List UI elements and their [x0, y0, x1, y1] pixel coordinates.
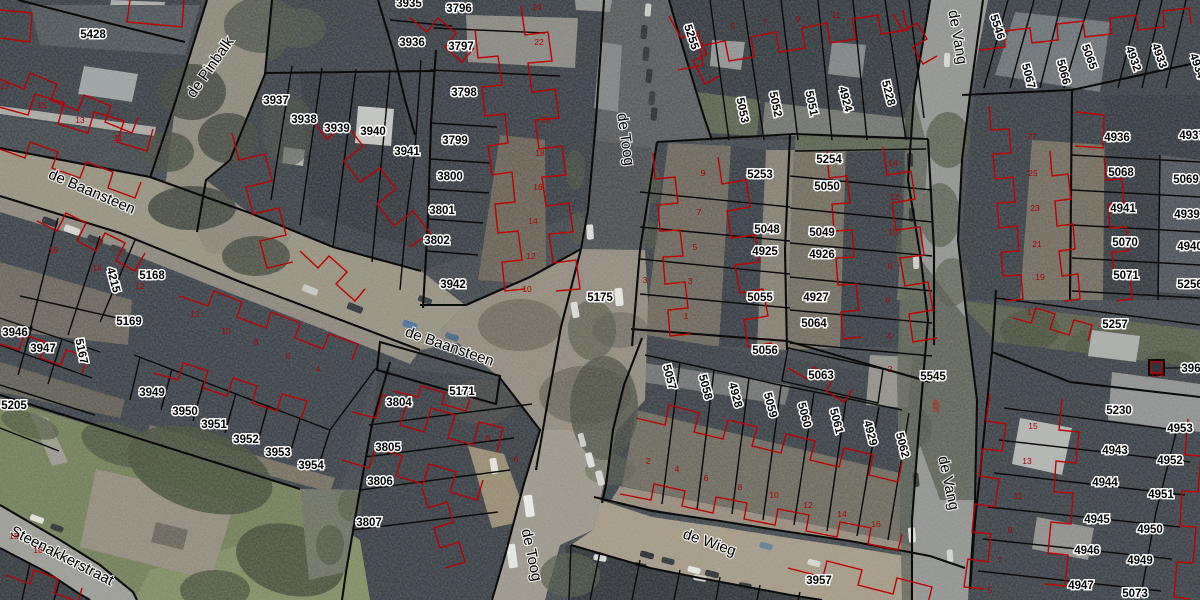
svg-text:5256: 5256 — [1177, 279, 1200, 291]
svg-text:5175: 5175 — [587, 292, 613, 304]
svg-text:4950: 4950 — [1137, 524, 1163, 536]
svg-text:3957: 3957 — [806, 575, 832, 587]
svg-text:4951: 4951 — [1148, 489, 1174, 501]
svg-text:5257: 5257 — [1102, 319, 1128, 331]
svg-text:8: 8 — [486, 433, 491, 443]
svg-text:16: 16 — [33, 545, 43, 555]
svg-text:12: 12 — [526, 251, 536, 261]
svg-text:5063: 5063 — [808, 370, 834, 382]
svg-text:22: 22 — [534, 37, 544, 47]
svg-text:4952: 4952 — [1157, 455, 1183, 467]
svg-text:4: 4 — [316, 364, 321, 374]
svg-text:4946: 4946 — [1074, 545, 1100, 557]
svg-text:3806: 3806 — [367, 476, 393, 488]
svg-text:3: 3 — [696, 29, 701, 39]
svg-text:5064: 5064 — [801, 318, 827, 330]
svg-text:3947: 3947 — [30, 343, 56, 355]
svg-text:3796: 3796 — [446, 3, 472, 15]
svg-text:396: 396 — [1181, 363, 1200, 375]
svg-text:3952: 3952 — [233, 434, 259, 446]
svg-text:3: 3 — [643, 275, 648, 285]
svg-text:3951: 3951 — [201, 419, 227, 431]
svg-text:3935: 3935 — [396, 0, 422, 10]
svg-text:3799: 3799 — [442, 135, 468, 147]
svg-text:9: 9 — [796, 14, 801, 24]
svg-text:5254: 5254 — [816, 154, 842, 166]
svg-text:21: 21 — [1032, 239, 1042, 249]
svg-text:9: 9 — [1008, 525, 1013, 535]
svg-text:5: 5 — [693, 242, 698, 252]
svg-text:6: 6 — [514, 454, 519, 464]
svg-text:4949: 4949 — [1127, 555, 1153, 567]
svg-text:5428: 5428 — [80, 29, 106, 41]
svg-text:5230: 5230 — [1106, 405, 1132, 417]
svg-text:3941: 3941 — [394, 146, 420, 158]
svg-text:5169: 5169 — [116, 316, 142, 328]
svg-text:5070: 5070 — [1112, 237, 1138, 249]
svg-text:6: 6 — [286, 351, 291, 361]
svg-text:8: 8 — [888, 261, 893, 271]
svg-text:12: 12 — [190, 309, 200, 319]
svg-text:5071: 5071 — [1113, 270, 1139, 282]
svg-text:5050: 5050 — [814, 181, 840, 193]
svg-text:5: 5 — [988, 585, 993, 595]
svg-text:154: 154 — [1150, 369, 1164, 379]
svg-text:4953: 4953 — [1167, 423, 1193, 435]
svg-text:5055: 5055 — [747, 292, 773, 304]
svg-text:27: 27 — [1027, 131, 1037, 141]
svg-text:3936: 3936 — [399, 37, 425, 49]
svg-text:3954: 3954 — [298, 460, 324, 472]
svg-text:8: 8 — [254, 337, 259, 347]
svg-text:5205: 5205 — [1, 400, 27, 412]
svg-text:3797: 3797 — [448, 41, 474, 53]
svg-text:12: 12 — [135, 281, 145, 291]
svg-text:5253: 5253 — [747, 169, 773, 181]
svg-text:3801: 3801 — [429, 205, 455, 217]
svg-text:10: 10 — [888, 227, 898, 237]
svg-text:3940: 3940 — [360, 126, 386, 138]
svg-text:10: 10 — [522, 284, 532, 294]
svg-text:15: 15 — [1028, 421, 1038, 431]
svg-text:3800: 3800 — [437, 171, 463, 183]
svg-text:10: 10 — [221, 326, 231, 336]
svg-text:2: 2 — [646, 456, 651, 466]
svg-text:5545: 5545 — [920, 371, 946, 383]
svg-text:4927: 4927 — [803, 292, 829, 304]
svg-text:14: 14 — [92, 263, 102, 273]
svg-text:12: 12 — [890, 192, 900, 202]
svg-text:5069: 5069 — [1173, 174, 1199, 186]
svg-text:2: 2 — [888, 364, 893, 374]
svg-text:16: 16 — [871, 519, 881, 529]
svg-text:3805: 3805 — [375, 442, 401, 454]
svg-text:13: 13 — [1022, 456, 1032, 466]
svg-text:23: 23 — [1030, 203, 1040, 213]
svg-text:7: 7 — [763, 17, 768, 27]
svg-text:1: 1 — [684, 311, 689, 321]
svg-text:14: 14 — [528, 216, 538, 226]
svg-text:11: 11 — [1014, 491, 1023, 501]
svg-text:13: 13 — [75, 115, 85, 125]
svg-text:11: 11 — [114, 133, 123, 143]
svg-text:11: 11 — [832, 10, 841, 20]
svg-text:4939: 4939 — [1174, 209, 1200, 221]
svg-text:14: 14 — [888, 158, 898, 168]
svg-text:4941: 4941 — [1110, 203, 1136, 215]
svg-text:19: 19 — [1035, 272, 1045, 282]
svg-text:4: 4 — [887, 331, 892, 341]
svg-text:5073: 5073 — [1122, 588, 1148, 600]
svg-text:3950: 3950 — [172, 406, 198, 418]
svg-text:4944: 4944 — [1092, 477, 1118, 489]
svg-text:24: 24 — [532, 2, 542, 12]
svg-text:5068: 5068 — [1108, 167, 1134, 179]
svg-text:20: 20 — [541, 115, 551, 125]
svg-text:5049: 5049 — [809, 227, 835, 239]
svg-text:4937: 4937 — [1179, 130, 1200, 142]
svg-text:4943: 4943 — [1102, 445, 1128, 457]
svg-text:5048: 5048 — [754, 224, 780, 236]
svg-text:14: 14 — [837, 509, 847, 519]
svg-text:5056: 5056 — [752, 345, 778, 357]
svg-text:3946: 3946 — [2, 327, 28, 339]
svg-text:16: 16 — [48, 245, 58, 255]
svg-text:5171: 5171 — [449, 386, 475, 398]
svg-text:25: 25 — [1028, 168, 1038, 178]
svg-text:3798: 3798 — [451, 87, 477, 99]
svg-text:4945: 4945 — [1084, 514, 1110, 526]
svg-text:4947: 4947 — [1068, 580, 1094, 592]
svg-text:4926: 4926 — [809, 249, 835, 261]
svg-text:3949: 3949 — [139, 387, 165, 399]
svg-text:3802: 3802 — [424, 235, 450, 247]
svg-text:4925: 4925 — [752, 246, 778, 258]
svg-text:15: 15 — [37, 100, 47, 110]
svg-text:6: 6 — [704, 473, 709, 483]
svg-text:8: 8 — [738, 482, 743, 492]
svg-text:4: 4 — [675, 464, 680, 474]
svg-text:12: 12 — [803, 500, 813, 510]
svg-text:3953: 3953 — [265, 447, 291, 459]
svg-text:3807: 3807 — [356, 517, 382, 529]
svg-text:3804: 3804 — [386, 397, 412, 409]
svg-text:4936: 4936 — [1104, 132, 1130, 144]
svg-text:16: 16 — [533, 182, 543, 192]
svg-text:18: 18 — [9, 531, 19, 541]
svg-text:10: 10 — [769, 490, 779, 500]
svg-text:3: 3 — [688, 276, 693, 286]
svg-text:9: 9 — [701, 168, 706, 178]
svg-text:3939: 3939 — [324, 123, 350, 135]
svg-text:7: 7 — [697, 207, 702, 217]
svg-text:4940: 4940 — [1177, 241, 1200, 253]
svg-text:17: 17 — [1027, 307, 1037, 317]
svg-text:3938: 3938 — [291, 114, 317, 126]
svg-text:3937: 3937 — [263, 95, 289, 107]
svg-text:3942: 3942 — [440, 279, 466, 291]
svg-text:18: 18 — [535, 148, 545, 158]
svg-text:7: 7 — [998, 555, 1003, 565]
svg-text:17: 17 — [0, 81, 10, 91]
svg-text:5: 5 — [731, 21, 736, 31]
svg-text:6: 6 — [886, 295, 891, 305]
